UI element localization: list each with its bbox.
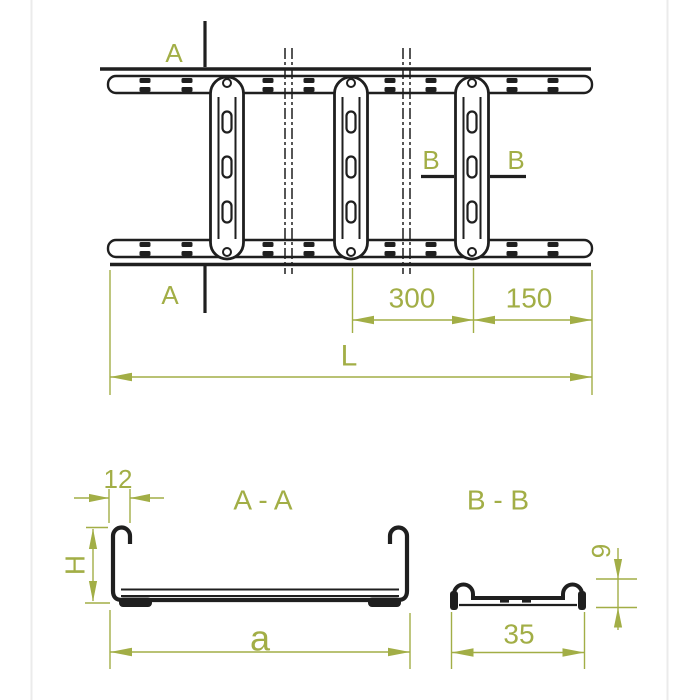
slot-mark (500, 600, 509, 603)
dimension-arrow (570, 373, 592, 382)
dimension-arrow (452, 648, 474, 657)
section-b-label-left: B (422, 145, 439, 175)
rung-1 (211, 77, 244, 259)
dimension-arrow (563, 648, 585, 657)
dimension-arrow (353, 316, 375, 325)
rung-2 (335, 77, 368, 259)
dim-H-text: H (60, 555, 91, 575)
dimension-arrow (474, 316, 496, 325)
dim-12-text: 12 (104, 464, 133, 494)
dim-35-text: 35 (503, 619, 534, 650)
technical-drawing: A A B B 300 150 L (0, 0, 700, 700)
dim-rung-width: 35 (452, 612, 585, 669)
section-a-label-top: A (165, 38, 183, 68)
dimension-arrow (110, 648, 132, 657)
rung-profile-left-tab (450, 591, 458, 610)
dim-9-text: 9 (586, 544, 616, 558)
slot-mark (522, 600, 531, 603)
dimension-arrow (614, 559, 622, 579)
section-bb-view: B - B 9 35 (450, 485, 637, 670)
dimension-arrow (110, 373, 132, 382)
section-a-label-bottom: A (161, 280, 179, 310)
dim-rung-height: 9 (586, 544, 637, 630)
section-cut-a: A A (161, 21, 205, 313)
dimension-arrow (570, 316, 592, 325)
dim-rung-spacing: 300 150 (353, 268, 593, 395)
dimension-arrow (130, 494, 150, 502)
drawing-canvas: A A B B 300 150 L (0, 0, 700, 700)
dim-150-text: 150 (506, 283, 553, 314)
section-b-label-right: B (507, 145, 524, 175)
dim-side-height: H (60, 528, 111, 604)
dimension-arrow (89, 529, 97, 550)
dimension-arrow (89, 581, 97, 602)
dimension-arrow (89, 494, 109, 502)
dimension-arrow (614, 608, 622, 628)
section-bb-title: B - B (467, 485, 529, 516)
rung-3 (456, 77, 489, 259)
dim-L-text: L (341, 340, 358, 373)
dim-hook-width: 12 (74, 464, 164, 523)
dim-channel-width: a (110, 610, 410, 669)
dim-300-text: 300 (389, 283, 436, 314)
section-aa-title: A - A (233, 485, 292, 516)
section-aa-view: A - A 12 H (60, 464, 411, 669)
rung-profile-right-tab (578, 591, 586, 610)
dim-a-text: a (250, 618, 271, 659)
dimension-arrow (452, 316, 474, 325)
dimension-arrow (388, 648, 410, 657)
plan-view: A A B B 300 150 L (100, 21, 592, 395)
